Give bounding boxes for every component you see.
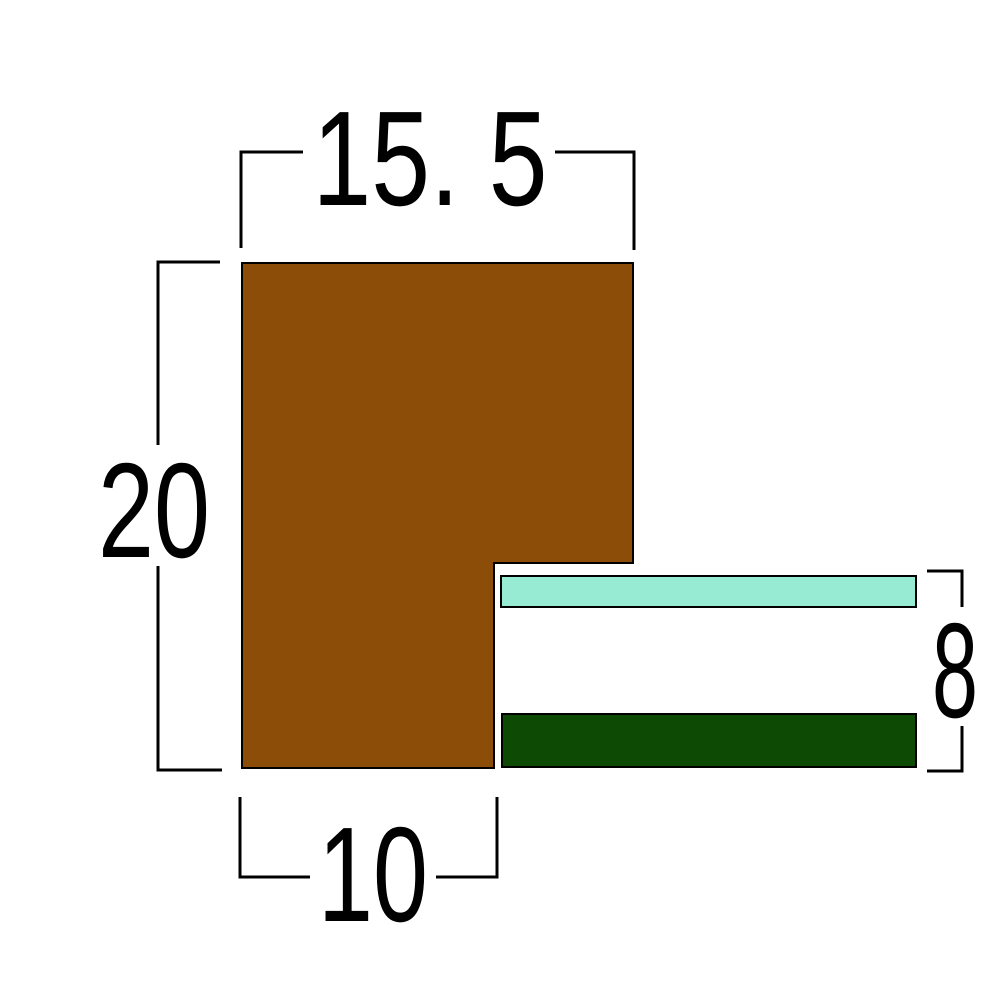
bottom-width-label: 10 bbox=[318, 799, 428, 950]
moulding-profile-shape bbox=[242, 263, 633, 768]
top-width-label: 15. 5 bbox=[313, 83, 548, 234]
base-strip-shape bbox=[502, 714, 916, 767]
left-height-label: 20 bbox=[98, 435, 210, 586]
lip-strip-shape bbox=[501, 576, 916, 607]
diagram-canvas: 15. 5 20 10 8 bbox=[0, 0, 1000, 1000]
right-height-label: 8 bbox=[932, 595, 978, 746]
cross-section-diagram: 15. 5 20 10 8 bbox=[0, 0, 1000, 1000]
